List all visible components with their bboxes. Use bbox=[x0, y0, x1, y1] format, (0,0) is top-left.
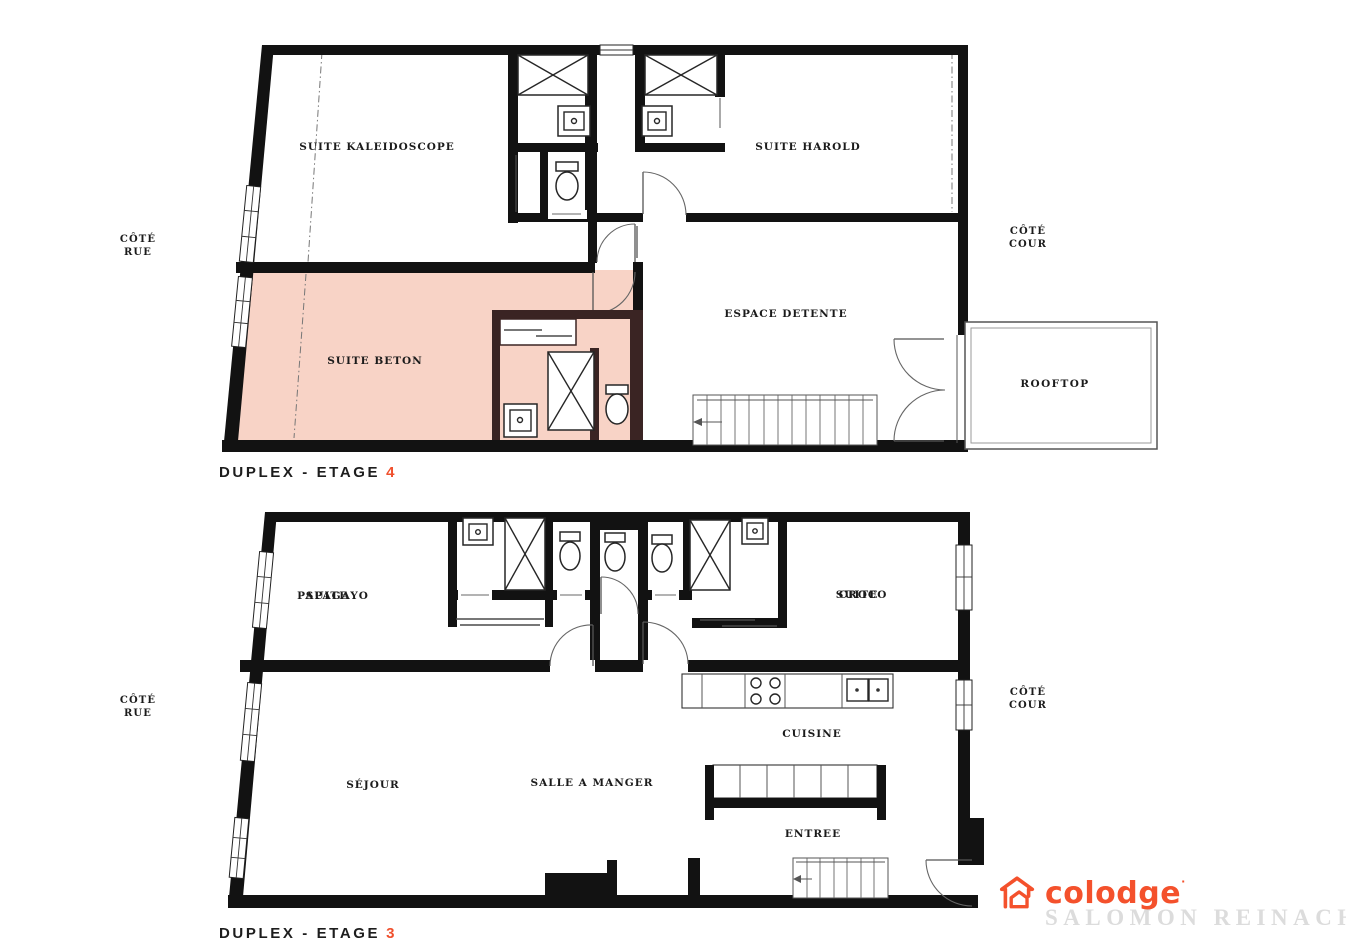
walls bbox=[228, 512, 984, 908]
side-label-cour-f4: CÔTÉ bbox=[1010, 225, 1046, 237]
french-doors bbox=[894, 335, 965, 443]
floor3-title-number: 3 bbox=[386, 925, 397, 942]
door-harold bbox=[643, 172, 686, 215]
toilet-icon bbox=[606, 385, 628, 424]
floor3-plan: SUITE PAPAGAYO SUITE CROCO SÉJOUR SALLE … bbox=[120, 512, 1047, 908]
floor3-title: DUPLEX - ETAGE3 bbox=[219, 925, 397, 942]
door-papagayo bbox=[550, 625, 593, 666]
door-vestibule bbox=[597, 224, 635, 262]
wc-room bbox=[516, 155, 587, 219]
kitchen-counter bbox=[682, 674, 893, 708]
room-label-entree: ENTREE bbox=[785, 828, 841, 840]
sink-icon bbox=[642, 106, 672, 136]
house-icon bbox=[998, 874, 1036, 912]
room-label-beton: SUITE BETON bbox=[327, 355, 423, 367]
top-wall-window bbox=[600, 45, 633, 55]
room-label-harold: SUITE HAROLD bbox=[755, 141, 861, 153]
stairs-icon bbox=[693, 395, 877, 445]
sink-icon bbox=[742, 518, 768, 544]
floor4-title: DUPLEX - ETAGE4 bbox=[219, 464, 397, 481]
residence-name: SALOMON REINACH bbox=[1045, 905, 1338, 931]
sink-icon bbox=[504, 404, 537, 437]
window-right-1 bbox=[956, 545, 972, 610]
room-label-espace-detente: ESPACE DETENTE bbox=[724, 308, 847, 320]
bathroom-harold bbox=[642, 55, 720, 136]
room-label-papagayo-name: PAPAGAYO bbox=[297, 590, 369, 602]
floor4-title-text: DUPLEX - ETAGE bbox=[219, 464, 380, 481]
svg-text:RUE: RUE bbox=[124, 247, 152, 258]
room-label-salle-a-manger: SALLE A MANGER bbox=[530, 777, 653, 789]
bathroom-croco bbox=[690, 518, 777, 626]
brand-mark: · bbox=[1181, 875, 1186, 888]
svg-text:COUR: COUR bbox=[1009, 700, 1047, 711]
floor3-title-text: DUPLEX - ETAGE bbox=[219, 925, 380, 942]
bar-island bbox=[705, 765, 886, 820]
room-label-croco-name: CROCO bbox=[839, 589, 888, 601]
wardrobe-icon bbox=[500, 319, 576, 345]
side-label-rue-f4: CÔTÉ bbox=[120, 233, 156, 245]
wc-rooms bbox=[557, 532, 679, 614]
door-wc-middle bbox=[601, 577, 638, 614]
toilet-icon bbox=[652, 535, 672, 572]
toilet-icon bbox=[605, 533, 625, 571]
toilet-icon bbox=[560, 532, 580, 570]
side-label-cour-f3: CÔTÉ bbox=[1010, 686, 1046, 698]
bathroom-kaleidoscope bbox=[518, 55, 590, 136]
bathroom-papagayo bbox=[456, 518, 545, 625]
svg-text:RUE: RUE bbox=[124, 708, 152, 719]
floor-plan-canvas: SUITE KALEIDOSCOPE SUITE HAROLD SUITE BE… bbox=[0, 0, 1346, 945]
floor4-plan: SUITE KALEIDOSCOPE SUITE HAROLD SUITE BE… bbox=[120, 45, 1157, 452]
door-croco bbox=[643, 622, 688, 664]
svg-text:COUR: COUR bbox=[1009, 239, 1047, 250]
toilet-icon bbox=[556, 162, 578, 200]
room-label-rooftop: ROOFTOP bbox=[1020, 378, 1089, 390]
floor4-title-number: 4 bbox=[386, 464, 397, 481]
sink-icon bbox=[558, 106, 590, 136]
floor-plans-drawing: SUITE KALEIDOSCOPE SUITE HAROLD SUITE BE… bbox=[0, 0, 1346, 945]
side-label-rue-f3: CÔTÉ bbox=[120, 694, 156, 706]
room-label-sejour: SÉJOUR bbox=[346, 777, 400, 791]
room-label-kaleidoscope: SUITE KALEIDOSCOPE bbox=[299, 141, 455, 153]
stairs-icon bbox=[793, 858, 888, 898]
room-label-cuisine: CUISINE bbox=[782, 728, 842, 740]
window-right-2 bbox=[956, 680, 972, 730]
sink-icon bbox=[463, 518, 493, 545]
colodge-logo: colodge· SALOMON REINACH bbox=[998, 874, 1338, 931]
